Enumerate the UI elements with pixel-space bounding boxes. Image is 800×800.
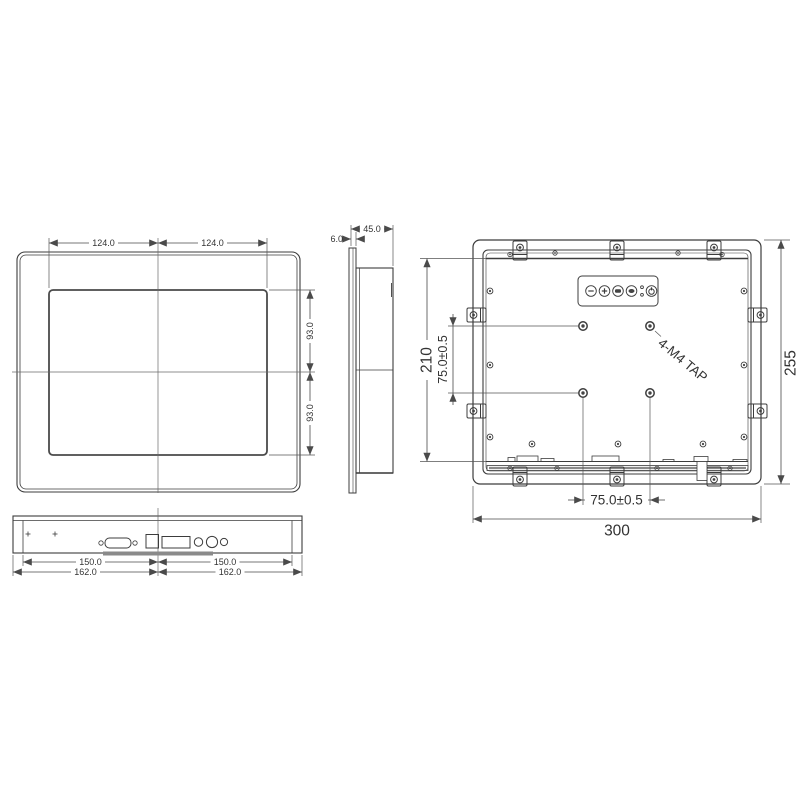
dim-label-vesa-vertical: 75.0±0.5 bbox=[436, 335, 450, 384]
dim-label-front-height-lower: 93.0 bbox=[305, 404, 315, 422]
bottom-view: 150.0 150.0 162.0 162.0 bbox=[13, 508, 302, 577]
rear-overall-height-dimension: 255 bbox=[764, 240, 800, 484]
power-jack-connector bbox=[206, 536, 217, 547]
side-depth-dimension: 45.0 bbox=[351, 224, 393, 266]
front-height-dimension: 93.0 93.0 bbox=[269, 290, 315, 455]
side-body-profile bbox=[356, 268, 393, 473]
dim-label-rear-overall-width: 300 bbox=[604, 523, 630, 540]
rear-outer-frame bbox=[473, 240, 761, 484]
osd-control-panel bbox=[578, 276, 658, 306]
side-bezel-profile bbox=[349, 248, 356, 493]
dim-label-bottom-outer-right: 162.0 bbox=[219, 567, 242, 577]
engineering-drawing-page: 124.0 124.0 93.0 93.0 45.0 bbox=[0, 0, 800, 800]
dim-label-side-bezel: 6.0 bbox=[330, 234, 343, 244]
side-view: 45.0 6.0 bbox=[330, 224, 393, 493]
led-indicator bbox=[641, 293, 644, 296]
jack-connector bbox=[194, 538, 202, 546]
vesa-tap-label: 4-M4 TAP bbox=[655, 335, 710, 385]
vesa-mount-holes bbox=[579, 322, 654, 397]
dim-label-front-width-left: 124.0 bbox=[92, 238, 115, 248]
dim-label-bottom-outer-left: 162.0 bbox=[74, 567, 97, 577]
video-connector bbox=[162, 537, 190, 549]
vesa-horizontal-dimension: 75.0±0.5 bbox=[568, 398, 665, 508]
rear-view: 4-M4 TAP 210 255 300 bbox=[419, 240, 800, 540]
led-indicator bbox=[641, 286, 644, 289]
rear-mounting-clips bbox=[467, 241, 767, 486]
dim-label-bottom-inner-right: 150.0 bbox=[214, 557, 237, 567]
dim-label-front-height-upper: 93.0 bbox=[305, 322, 315, 340]
dim-label-front-width-right: 124.0 bbox=[201, 238, 224, 248]
rear-cable-tab bbox=[697, 462, 707, 481]
vesa-vertical-dimension: 75.0±0.5 bbox=[436, 314, 578, 405]
panel-monitor-drawing: 124.0 124.0 93.0 93.0 45.0 bbox=[0, 0, 800, 800]
vesa-tap-leader bbox=[655, 331, 661, 337]
rear-back-cover bbox=[483, 250, 751, 474]
bottom-vent-slot bbox=[103, 552, 213, 556]
bottom-io-connectors bbox=[99, 535, 228, 549]
dim-label-bottom-inner-left: 150.0 bbox=[79, 557, 102, 567]
dim-label-vesa-horizontal: 75.0±0.5 bbox=[590, 493, 642, 508]
jack-connector-small bbox=[220, 538, 227, 545]
side-bezel-dimension: 6.0 bbox=[330, 234, 362, 244]
rear-screws bbox=[487, 251, 747, 471]
dim-label-rear-inner-height: 210 bbox=[419, 347, 436, 373]
bottom-screw-marks bbox=[26, 532, 58, 537]
bottom-inner-width-dimension: 150.0 150.0 bbox=[23, 555, 292, 567]
bottom-outer-width-dimension: 162.0 162.0 bbox=[13, 555, 302, 577]
vga-connector bbox=[105, 538, 131, 548]
usb-connector bbox=[146, 535, 159, 549]
dim-label-rear-overall-height: 255 bbox=[783, 350, 800, 376]
rear-inner-height-dimension: 210 bbox=[419, 259, 487, 462]
front-view: 124.0 124.0 93.0 93.0 bbox=[12, 238, 315, 493]
dim-label-side-depth: 45.0 bbox=[363, 224, 381, 234]
